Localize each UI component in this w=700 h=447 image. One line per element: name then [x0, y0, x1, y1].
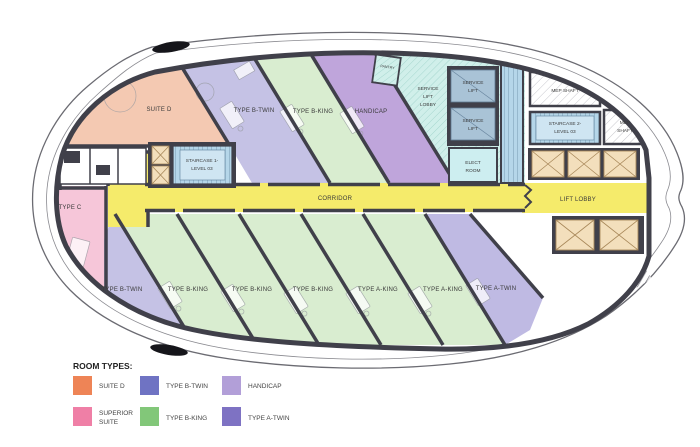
lift-lobby-label: LIFT LOBBY [560, 197, 596, 203]
bottom-fin [149, 342, 188, 358]
elect-room-l2: ROOM [466, 168, 481, 174]
service-lift1-l1: SERVICE [463, 80, 484, 86]
mep-shaft-2-l2: SHAFT [617, 128, 633, 134]
b-king-bottom2-label: TYPE B-KING [232, 287, 272, 293]
b-king-bottom1-label: TYPE B-KING [168, 287, 208, 293]
type-c-label: TYPE C [59, 205, 82, 211]
handicap-label: HANDICAP [355, 109, 388, 115]
legend: ROOM TYPES: SUITE D TYPE B-TWIN HANDICAP… [73, 361, 290, 426]
service-lift1-l2: LIFT [468, 88, 478, 94]
suite-d-label: SUITE D [146, 107, 172, 113]
service-lift-lobby-l1: SERVICE [418, 86, 439, 92]
legend-swatch-superior-suite [73, 407, 92, 426]
staircase-2-l2: LEVEL 03 [554, 129, 576, 135]
legend-label-b-king: TYPE B-KING [166, 415, 207, 422]
legend-label-a-twin: TYPE A-TWIN [248, 415, 290, 422]
legend-swatch-b-twin [140, 376, 159, 395]
corridor-label: CORRIDOR [318, 196, 353, 202]
mep-shaft-2-l1: MEP [620, 120, 630, 126]
service-lift2-l2: LIFT [468, 126, 478, 132]
b-king-bottom3-label: TYPE B-KING [293, 287, 333, 293]
service-lift-lobby-l2: LIFT [423, 94, 433, 100]
elect-room-l1: ELECT [465, 160, 481, 166]
mep-shaft-1-label: MEP SHAFT [551, 88, 578, 94]
staircase-2-l1: STAIRCASE 2- [549, 121, 582, 127]
b-twin-bottom-label: TYPE B-TWIN [102, 287, 143, 293]
legend-title: ROOM TYPES: [73, 361, 133, 371]
staircase-1-label-line2: LEVEL 03 [191, 166, 213, 172]
a-king-bottom1-label: TYPE A-KING [358, 287, 398, 293]
service-lift-lobby-l3: LOBBY [420, 102, 437, 108]
staircase-1-label-line1: STAIRCASE 1- [186, 158, 219, 164]
floor-plan-drawing: STAIRCASE 1- LEVEL 03 PANTRY [0, 0, 700, 447]
legend-label-handicap: HANDICAP [248, 383, 282, 390]
legend-swatch-a-twin [222, 407, 241, 426]
legend-label-superior-l1: SUPERIOR [99, 410, 133, 417]
legend-swatch-suite-d [73, 376, 92, 395]
legend-swatch-handicap [222, 376, 241, 395]
a-twin-bottom-label: TYPE A-TWIN [476, 286, 517, 292]
legend-label-b-twin: TYPE B-TWIN [166, 383, 208, 390]
a-king-bottom2-label: TYPE A-KING [423, 287, 463, 293]
floor-plan-page: STAIRCASE 1- LEVEL 03 PANTRY [0, 0, 700, 447]
legend-label-suite-d: SUITE D [99, 383, 125, 390]
service-lift2-l1: SERVICE [463, 118, 484, 124]
b-twin-top-label: TYPE B-TWIN [234, 108, 275, 114]
legend-label-superior-l2: SUITE [99, 419, 119, 426]
legend-swatch-b-king [140, 407, 159, 426]
b-king-top-label: TYPE B-KING [293, 109, 333, 115]
staircase-1: STAIRCASE 1- LEVEL 03 [148, 142, 236, 188]
